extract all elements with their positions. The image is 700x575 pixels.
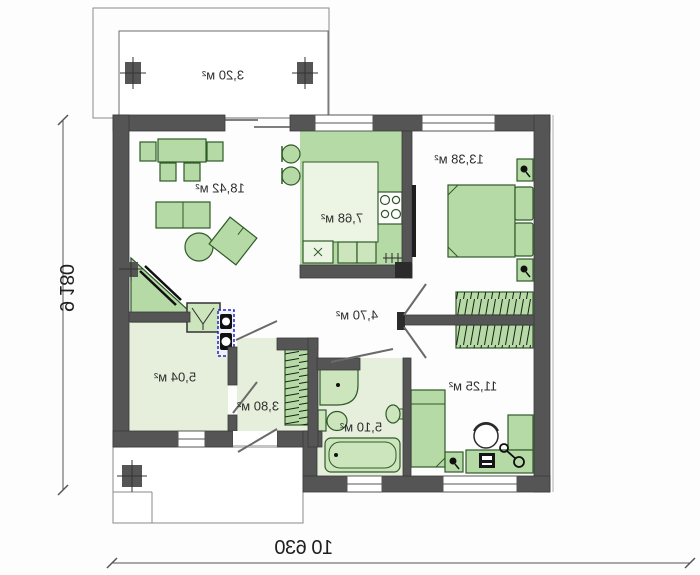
stove — [378, 192, 402, 224]
kitchen-sink — [303, 241, 333, 263]
desktop-computer-icon — [479, 453, 495, 468]
room-area-label-bathroom: 5,10 м² — [340, 421, 382, 434]
window — [347, 476, 382, 492]
nightstand — [517, 159, 533, 181]
nightstand — [517, 259, 533, 281]
window — [443, 476, 517, 492]
table-lamp-icon — [521, 166, 528, 173]
room-area-label-terrace: 3,20 м² — [202, 69, 244, 82]
wall-end-post — [395, 262, 412, 278]
chair — [184, 163, 200, 181]
kitchen-free-floor — [303, 162, 378, 242]
table-lamp-icon — [450, 458, 457, 465]
double-bed — [448, 185, 533, 257]
kitchen-cabinet — [357, 242, 376, 263]
wardrobe — [456, 325, 533, 348]
single-bed — [411, 390, 445, 467]
washbasin-utility — [187, 303, 220, 332]
nightstand — [445, 452, 463, 472]
pillow — [515, 187, 533, 220]
floor-plan-drawing — [0, 0, 700, 575]
wardrobe — [456, 292, 533, 315]
terrace-door — [225, 120, 290, 127]
shower — [320, 366, 358, 405]
chair — [160, 163, 176, 181]
wardrobe — [285, 341, 308, 425]
room-area-label-hall: 3,80 м² — [237, 400, 279, 413]
table-lamp-icon — [521, 266, 528, 273]
room-area-label-utility: 5,04 м² — [154, 371, 196, 384]
dimension-line-horizontal — [107, 558, 695, 568]
sofa — [156, 202, 210, 228]
dining-set — [140, 139, 223, 181]
window — [422, 115, 495, 131]
window — [178, 431, 205, 447]
dimension-label-width: 10 630 — [275, 538, 333, 558]
bathtub — [325, 438, 400, 472]
chair — [207, 142, 223, 161]
bar-stool — [282, 167, 300, 185]
dining-table — [158, 139, 206, 162]
room-area-label-hallway: 4,70 м² — [336, 309, 378, 322]
room-area-label-bedroom1: 13,38 м² — [434, 153, 483, 166]
round-chair — [474, 424, 498, 448]
room-area-label-living: 18,42 м² — [195, 182, 244, 195]
floor-plan: 3,20 м² 18,42 м² 7,68 м² 13,38 м² 4,70 м… — [0, 0, 700, 575]
chair — [140, 142, 156, 161]
pillow — [515, 223, 533, 256]
bar-stool — [282, 145, 300, 163]
coffee-table — [185, 233, 213, 261]
kitchen-cabinet — [338, 242, 357, 263]
open-door-leaf — [412, 185, 416, 257]
armchair — [209, 217, 257, 265]
room-area-label-kitchen: 7,68 м² — [321, 212, 363, 225]
window — [315, 115, 373, 131]
dimension-label-depth: 9 180 — [56, 264, 76, 312]
room-area-label-bedroom2: 11,25 м² — [449, 380, 497, 393]
